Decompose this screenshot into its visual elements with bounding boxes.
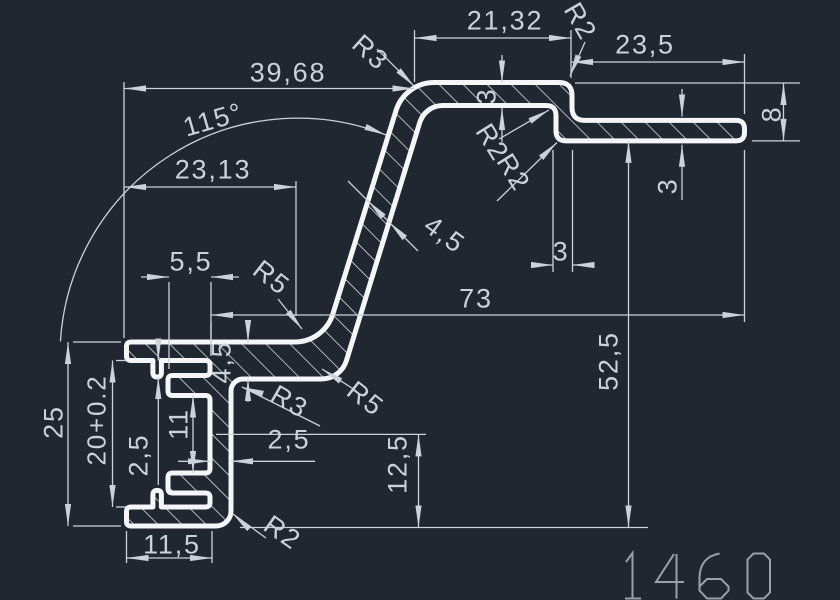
svg-text:20+0.2: 20+0.2 [81,374,111,465]
svg-text:11: 11 [164,408,194,440]
svg-text:11,5: 11,5 [143,530,201,560]
svg-text:25: 25 [39,405,69,439]
svg-text:23,13: 23,13 [175,155,252,185]
svg-text:3: 3 [553,237,570,267]
svg-text:2,5: 2,5 [124,434,154,477]
svg-text:3: 3 [653,178,683,195]
svg-text:12,5: 12,5 [383,434,413,494]
svg-text:21,32: 21,32 [467,6,544,36]
svg-text:52,5: 52,5 [594,331,624,391]
svg-text:39,68: 39,68 [250,58,327,88]
svg-text:4,5: 4,5 [207,341,237,384]
svg-text:2,5: 2,5 [268,425,311,455]
svg-text:23,5: 23,5 [615,30,675,60]
svg-text:5,5: 5,5 [170,247,213,277]
svg-text:8: 8 [757,106,787,123]
svg-text:73: 73 [459,284,493,314]
svg-text:3: 3 [472,88,502,105]
